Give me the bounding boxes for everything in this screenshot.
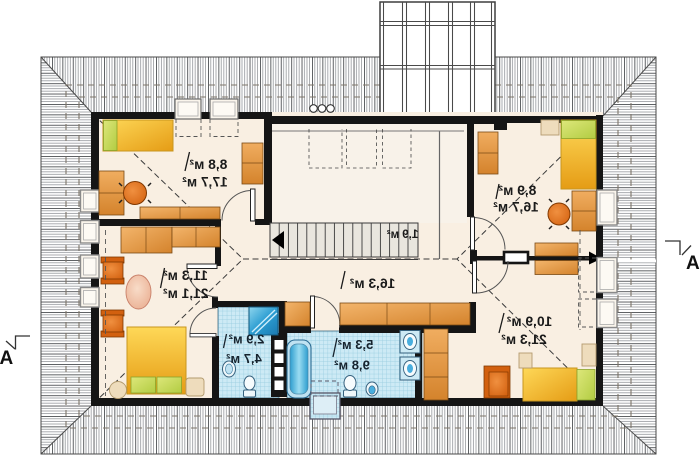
svg-text:8,8 м²: 8,8 м² [189,157,227,172]
svg-text:5,3 м²: 5,3 м² [337,337,373,352]
svg-text:8,9 м²: 8,9 м² [498,183,536,198]
svg-text:17,7 м²: 17,7 м² [182,175,228,190]
svg-text:21,1 м²: 21,1 м² [163,286,209,301]
svg-text:11,3 м²: 11,3 м² [163,268,208,283]
svg-text:10,9 м²: 10,9 м² [506,314,552,329]
svg-text:16,7 м²: 16,7 м² [493,200,539,215]
svg-text:21,3 м²: 21,3 м² [501,332,547,347]
svg-text:A: A [686,253,700,274]
svg-text:1,9 м²: 1,9 м² [387,229,419,241]
svg-text:2,9 м²: 2,9 м² [228,332,264,347]
svg-text:4,7 м²: 4,7 м² [226,351,262,366]
svg-text:16,3 м²: 16,3 м² [349,276,395,291]
svg-text:A: A [0,348,14,369]
svg-text:9,8 м²: 9,8 м² [334,358,370,373]
